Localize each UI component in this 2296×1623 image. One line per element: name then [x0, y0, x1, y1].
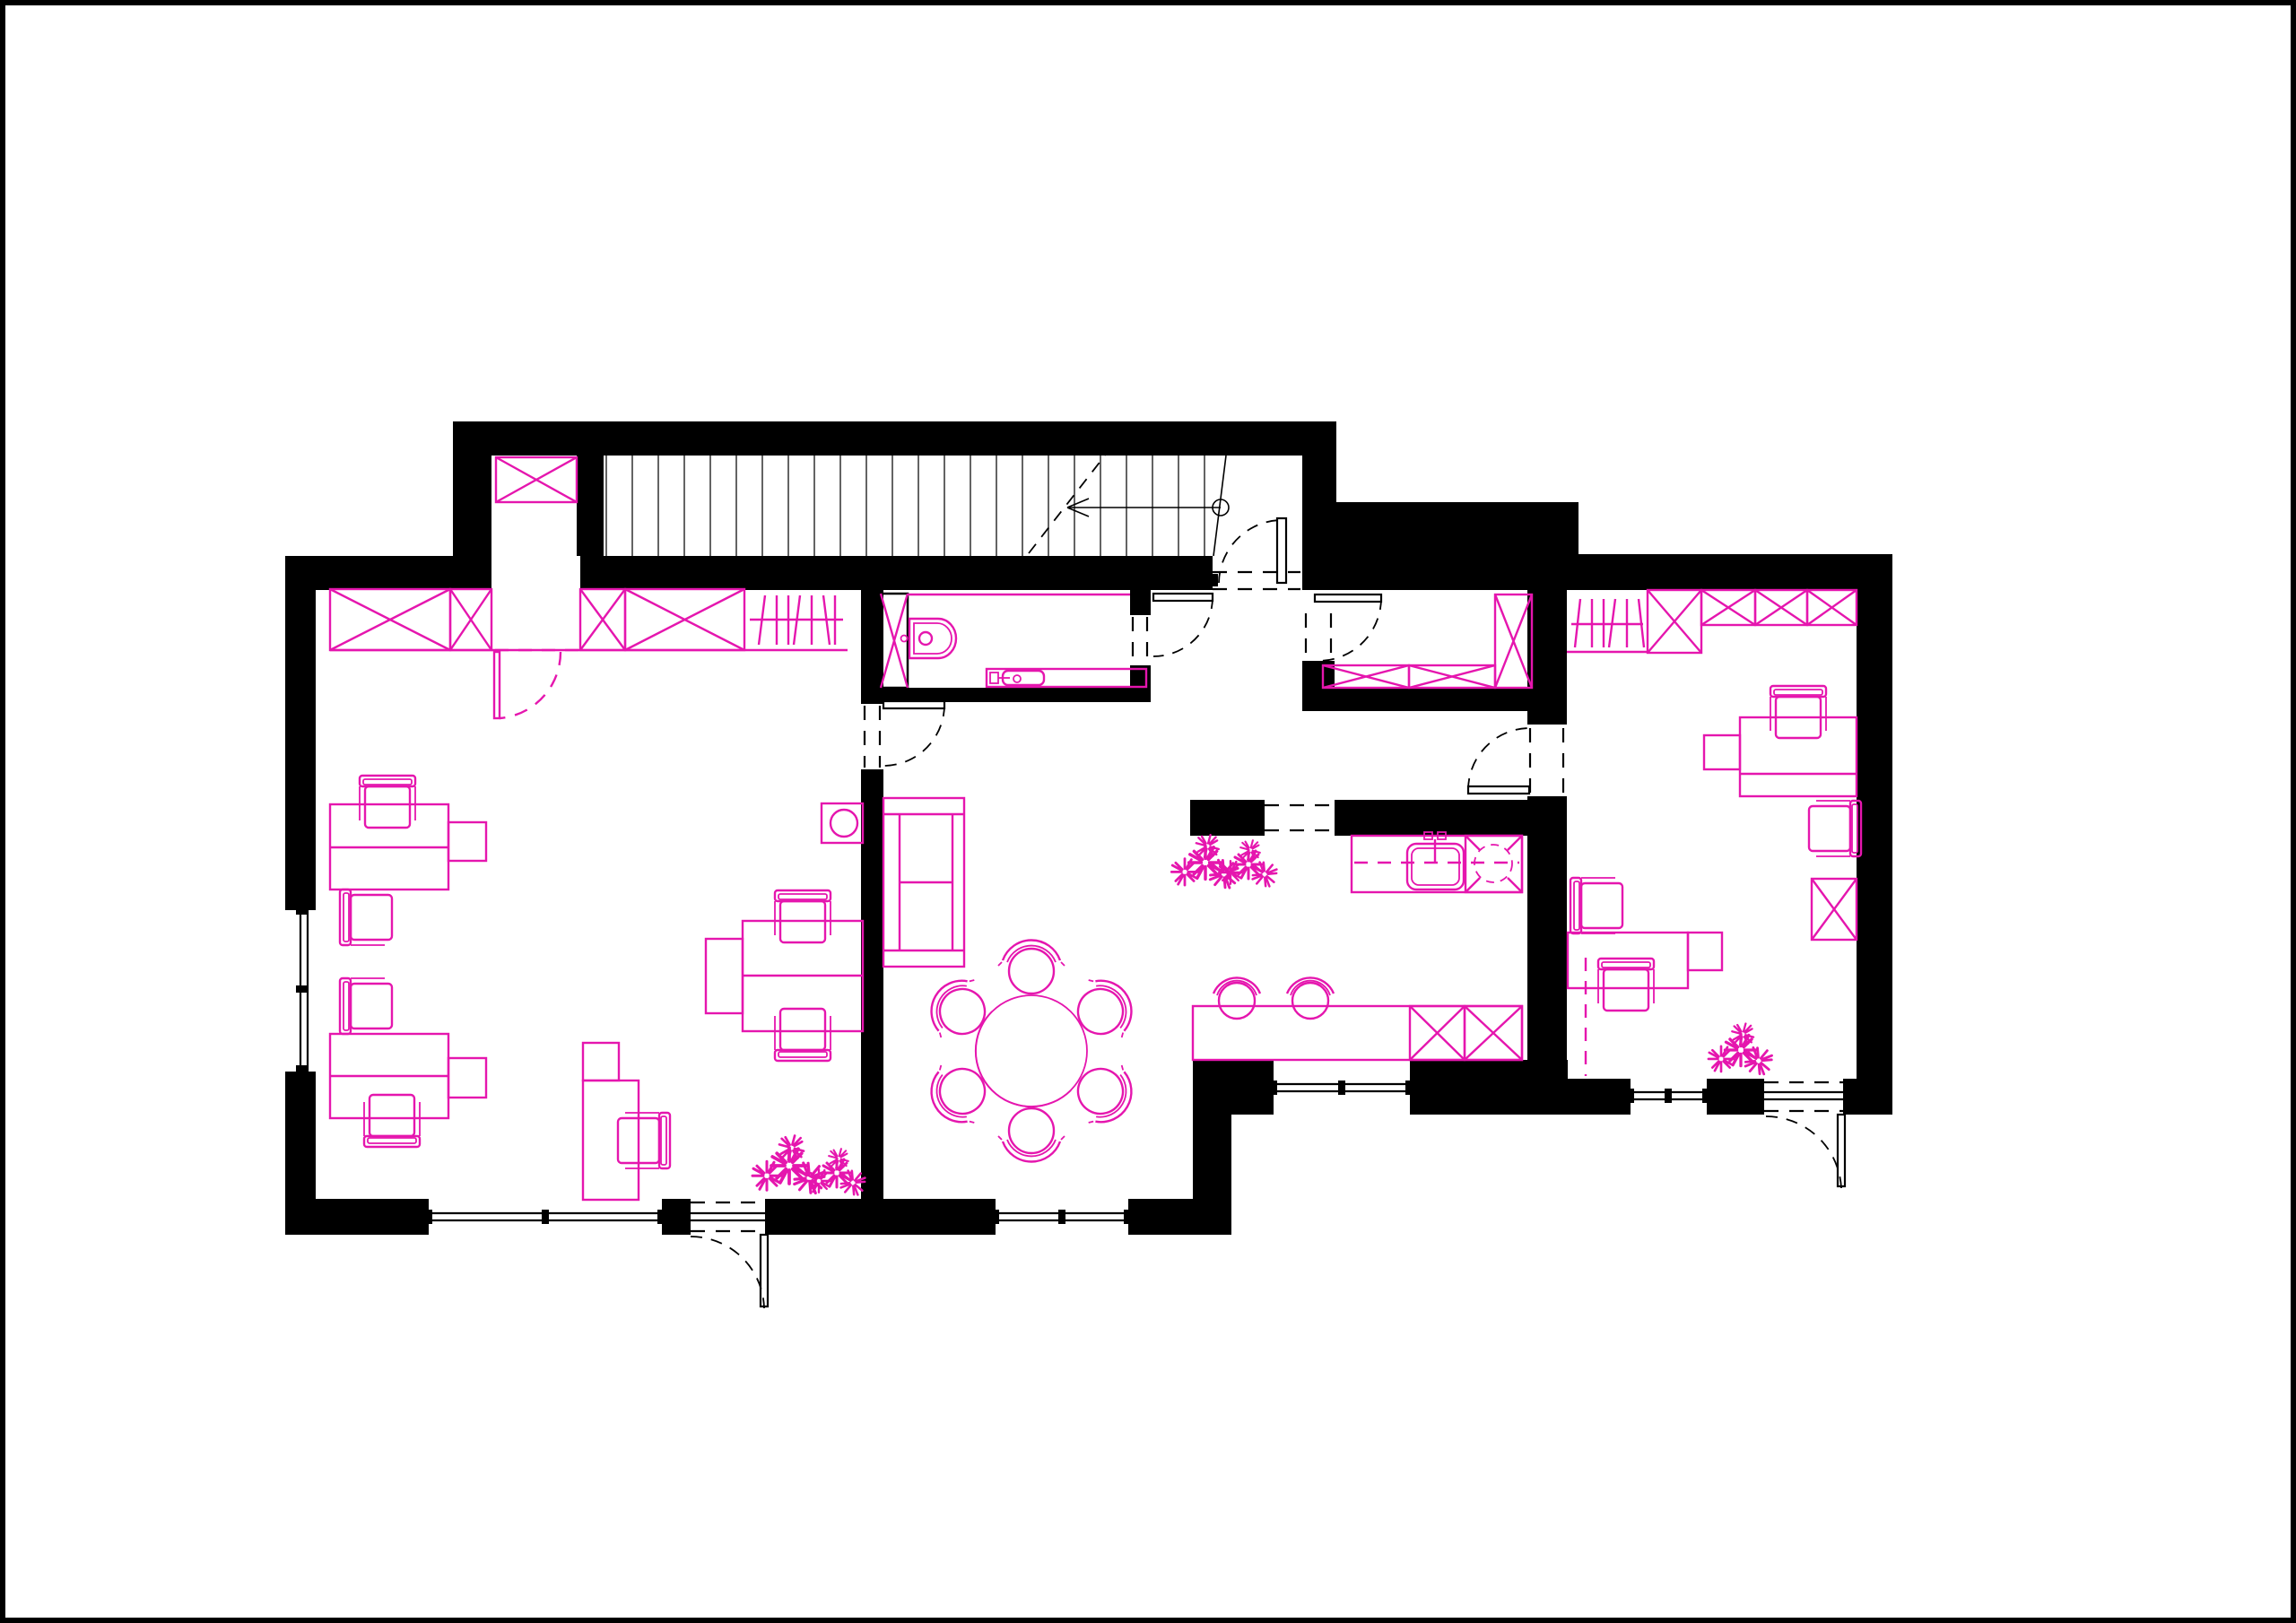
clothes-rail-icon	[1567, 599, 1648, 652]
office-chair	[775, 1009, 831, 1061]
bathtub	[901, 619, 957, 658]
bathroom	[881, 594, 1146, 688]
plant-icon	[1171, 832, 1243, 894]
kitchen	[1171, 832, 1522, 1060]
dining-chair	[998, 940, 1065, 994]
bar-stool	[1287, 977, 1334, 1019]
kitchen-sink	[1407, 832, 1464, 890]
window-left-office-south	[425, 1210, 665, 1224]
desk-group-2	[330, 1034, 486, 1118]
wardrobe-row-left-office	[330, 589, 848, 650]
kitchen-counter-north	[1352, 832, 1522, 892]
bar-stool	[1213, 977, 1260, 1019]
plant-icon	[807, 1146, 870, 1200]
dining-chair	[1065, 968, 1144, 1052]
office-chair	[340, 890, 392, 945]
dining-chair	[919, 968, 999, 1052]
door-lobby-hall	[1306, 595, 1381, 661]
closet-door-left-office	[494, 650, 578, 718]
door-left-office	[865, 701, 944, 768]
office-chair	[1598, 959, 1654, 1011]
plant-icon	[1709, 1020, 1778, 1080]
duct-shaft-cross	[881, 594, 908, 688]
office-chair	[1809, 801, 1861, 856]
round-dining-table	[976, 995, 1087, 1107]
double-desk-center	[706, 921, 863, 1031]
office-chair	[360, 776, 415, 828]
window-dining-south	[992, 1210, 1131, 1224]
dining-living-room	[883, 798, 1144, 1162]
floor-plan-page	[0, 0, 2296, 1623]
door-right-office	[1468, 728, 1563, 794]
kitchen-pass-through-opening	[1265, 805, 1335, 830]
floor-plan-drawing	[0, 0, 2296, 1623]
hall-closets	[1323, 595, 1532, 688]
office-chair	[775, 890, 831, 942]
stair-shaft-cabinet	[496, 457, 577, 502]
exterior-door-left	[691, 1202, 768, 1308]
staircase	[496, 456, 1229, 556]
desk-group-1	[330, 804, 486, 890]
office-chair	[1570, 878, 1622, 933]
stair-break-line	[1029, 456, 1105, 553]
desk-right-main	[1704, 717, 1857, 796]
desk-right-south	[1568, 933, 1722, 1076]
cabinet-x-right	[1812, 879, 1857, 940]
stair-rail-line	[1213, 456, 1226, 556]
page-border	[3, 3, 2293, 1620]
side-table	[822, 803, 863, 843]
dining-chair	[919, 1051, 999, 1135]
dining-chair	[1065, 1051, 1144, 1135]
walls	[285, 421, 1892, 1235]
right-office-room	[1567, 590, 1861, 1080]
window-left-wall	[296, 907, 308, 1072]
bathroom-counter-sink	[987, 669, 1146, 687]
left-office-room	[330, 589, 870, 1200]
kitchen-bar-counter	[1193, 1006, 1522, 1060]
wardrobe-row-right-office	[1567, 590, 1857, 653]
window-right-office-south	[1627, 1089, 1709, 1103]
sofa	[883, 798, 964, 967]
door-stairs-lobby	[1210, 518, 1300, 589]
office-chair	[1770, 686, 1826, 738]
exterior-door-right	[1764, 1082, 1845, 1188]
dining-chair	[998, 1108, 1065, 1162]
office-chair	[618, 1113, 670, 1168]
clothes-rail-icon	[750, 595, 843, 645]
desk-south	[583, 1043, 639, 1200]
office-chair	[364, 1095, 420, 1147]
window-kitchen-south	[1270, 1081, 1413, 1095]
cooktop	[1465, 836, 1522, 892]
office-chair	[340, 978, 392, 1034]
